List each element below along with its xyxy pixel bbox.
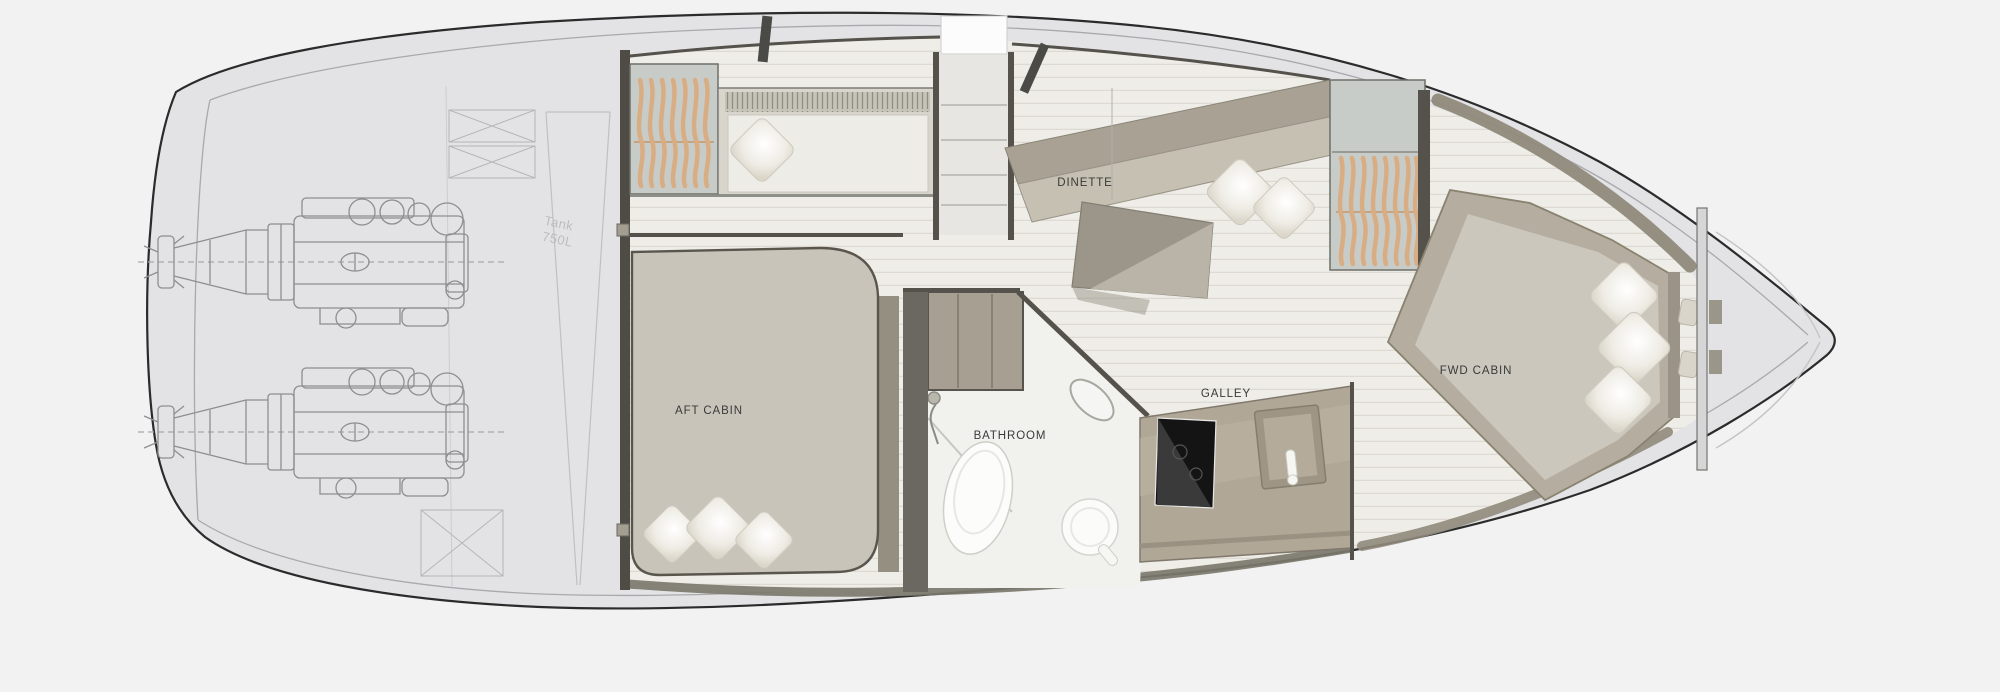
- fwd-cabin-label: FWD CABIN: [1440, 365, 1513, 377]
- fwd-bulkhead: [1418, 90, 1430, 265]
- bulkhead-latch-lower: [617, 524, 629, 536]
- floor-plan-canvas: Tank 750L: [0, 0, 2000, 692]
- aft-wardrobe: [630, 64, 718, 194]
- bow-bulkhead: [1697, 208, 1707, 470]
- fwd-headboard-trim: [1668, 272, 1680, 418]
- galley-label: GALLEY: [1201, 388, 1251, 400]
- aft-cabin: AFT CABIN: [630, 64, 935, 575]
- bathroom-cabinet: [928, 292, 1023, 390]
- engine-room-bulkhead: [620, 50, 630, 590]
- bow-step-lower: [1709, 350, 1722, 374]
- dinette-label: DINETTE: [1057, 177, 1113, 189]
- companionway-steps: [933, 16, 1014, 240]
- galley-sink: [1254, 405, 1326, 489]
- aft-side-berth: [718, 88, 935, 195]
- aft-cabin-label: AFT CABIN: [675, 405, 743, 417]
- aft-double-bed: [632, 248, 899, 575]
- fwd-wardrobe: [1330, 80, 1425, 270]
- cooktop: [1155, 418, 1216, 508]
- bow-step-upper: [1709, 300, 1722, 324]
- bathroom-label: BATHROOM: [974, 430, 1047, 442]
- boat-floor-plan: Tank 750L: [0, 0, 2000, 692]
- companionway-glass: [941, 16, 1007, 54]
- bulkhead-latch-upper: [617, 224, 629, 236]
- bathroom-left-wall: [903, 288, 928, 592]
- bedside-trim: [878, 296, 899, 572]
- berth-shelf: [725, 92, 930, 112]
